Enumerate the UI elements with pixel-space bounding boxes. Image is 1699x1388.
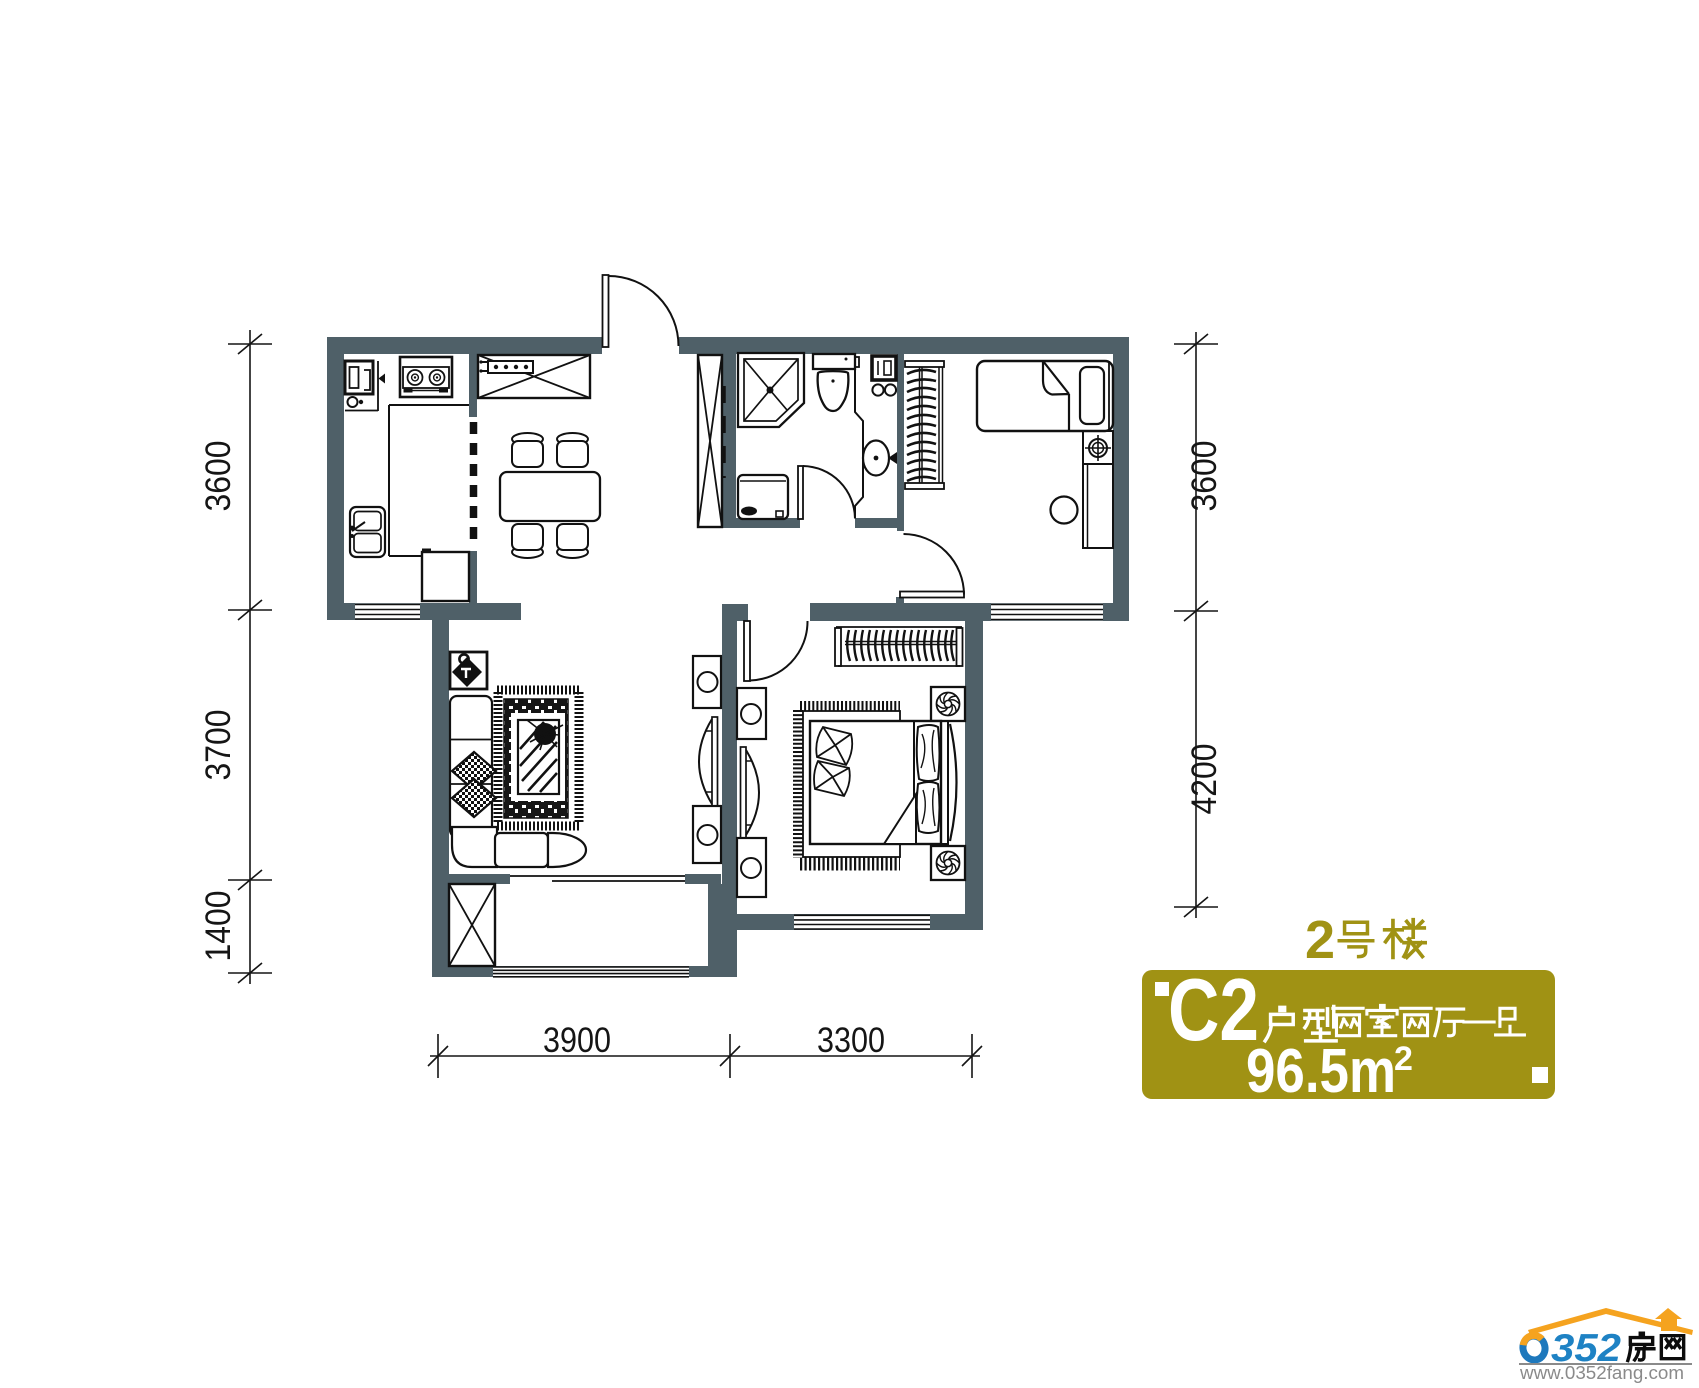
svg-text:3600: 3600	[1185, 441, 1224, 512]
svg-text:96.5m: 96.5m	[1246, 1037, 1396, 1106]
svg-text:2: 2	[1394, 1040, 1413, 1078]
svg-text:3300: 3300	[817, 1021, 885, 1060]
svg-text:2: 2	[1305, 910, 1335, 970]
svg-text:3900: 3900	[543, 1021, 611, 1060]
svg-text:www.0352fang.com: www.0352fang.com	[1519, 1363, 1684, 1383]
svg-text:3700: 3700	[199, 710, 238, 781]
svg-text:3600: 3600	[199, 441, 238, 512]
svg-text:1400: 1400	[199, 891, 238, 962]
svg-text:4200: 4200	[1185, 744, 1224, 815]
